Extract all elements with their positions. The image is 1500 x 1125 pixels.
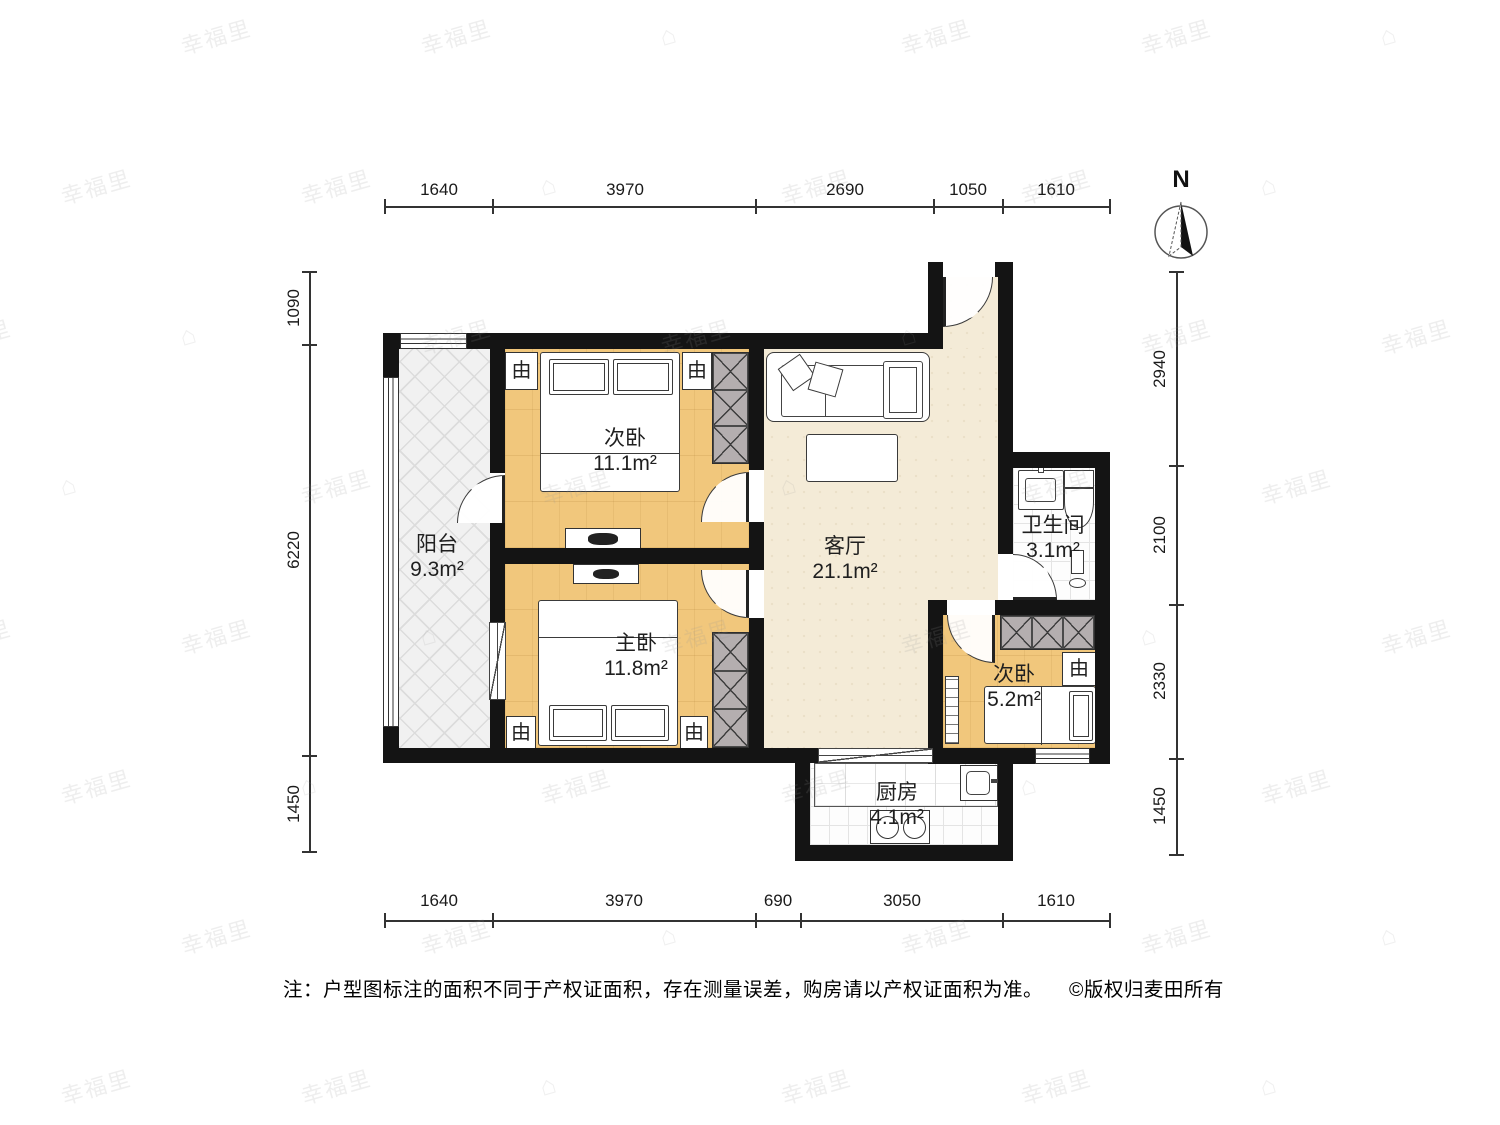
- dim-tick: [302, 851, 317, 853]
- faucet-icon: [991, 779, 998, 783]
- coffee-table: [806, 434, 898, 482]
- dim-tick: [755, 199, 757, 214]
- room-name: 厨房: [870, 781, 924, 806]
- compass-icon: [1146, 194, 1216, 266]
- dim-tick: [1169, 854, 1184, 856]
- watermark-logo-icon: ⌂: [656, 18, 682, 53]
- watermark-text: 幸福里: [1017, 1061, 1095, 1112]
- sofa-chaise: [883, 361, 923, 419]
- room-label-bathroom: 卫生间 3.1m²: [1022, 514, 1085, 564]
- bathroom-sink: [1018, 470, 1064, 510]
- watermark-text: 幸福里: [297, 1061, 375, 1112]
- room-label-master: 主卧 11.8m²: [604, 632, 668, 682]
- dim-value: 2690: [826, 180, 864, 200]
- room-name: 主卧: [604, 632, 668, 657]
- room-area: 11.1m²: [593, 452, 657, 477]
- dim-value: 1450: [1150, 787, 1170, 825]
- north-indicator: N: [1146, 166, 1216, 266]
- copyright-text: ©版权归麦田所有: [1069, 973, 1224, 1002]
- wall: [383, 333, 399, 377]
- wardrobe: [712, 632, 749, 748]
- watermark-text: 幸福里: [1137, 11, 1215, 62]
- room-name: 阳台: [410, 533, 464, 558]
- floorplan-page: { "watermark": { "brand": "幸福里", "logo_g…: [0, 0, 1500, 1125]
- dim-tick: [933, 199, 935, 214]
- watermark-text: 幸福里: [57, 761, 135, 812]
- wall: [383, 333, 943, 349]
- pillow: [549, 705, 607, 741]
- watermark-logo-icon: ⌂: [536, 168, 562, 203]
- watermark-text: 幸福里: [1257, 761, 1335, 812]
- watermark-text: 幸福里: [897, 11, 975, 62]
- watermark-logo-icon: ⌂: [1256, 168, 1282, 203]
- watermark-logo-icon: ⌂: [1016, 768, 1042, 803]
- dim-tick: [492, 913, 494, 928]
- nightstand-lamp: 由: [680, 716, 708, 750]
- tv-icon: [593, 569, 619, 580]
- dim-tick: [492, 199, 494, 214]
- nightstand-lamp: 由: [505, 352, 538, 390]
- dim-value: 690: [764, 891, 792, 911]
- window: [383, 377, 399, 727]
- nightstand-lamp: 由: [1062, 652, 1096, 686]
- dim-line-left: [309, 272, 311, 852]
- dim-tick: [1169, 758, 1184, 760]
- living-room-floor-lower: [764, 452, 928, 748]
- dim-tick: [800, 913, 802, 928]
- watermark-text: 幸福里: [897, 911, 975, 962]
- room-name: 客厅: [812, 535, 877, 560]
- dim-tick: [384, 913, 386, 928]
- wardrobe-cell: [1032, 616, 1063, 649]
- watermark-logo-icon: ⌂: [1136, 618, 1162, 653]
- watermark-logo-icon: ⌂: [1376, 918, 1402, 953]
- room-label-bedroom-b: 次卧 5.2m²: [987, 663, 1041, 713]
- blanket-fold: [1041, 687, 1042, 745]
- watermark-text: 幸福里: [417, 911, 495, 962]
- room-area: 3.1m²: [1022, 539, 1085, 564]
- wall: [490, 523, 505, 622]
- dim-value: 1640: [420, 180, 458, 200]
- wall: [490, 700, 505, 748]
- watermark-text: 幸福里: [177, 11, 255, 62]
- wall: [505, 548, 749, 564]
- tv-icon: [588, 533, 618, 545]
- pillow: [613, 359, 673, 395]
- watermark-text: 幸福里: [1377, 311, 1455, 362]
- watermark-text: 幸福里: [177, 611, 255, 662]
- watermark-text: 幸福里: [417, 11, 495, 62]
- sliding-door: [489, 622, 506, 700]
- dim-tick: [1169, 271, 1184, 273]
- dim-value: 1090: [284, 289, 304, 327]
- dim-value: 1610: [1037, 891, 1075, 911]
- pillow: [611, 705, 669, 741]
- room-label-living: 客厅 21.1m²: [812, 535, 877, 585]
- watermark-logo-icon: ⌂: [656, 918, 682, 953]
- lamp-icon: 由: [512, 361, 532, 381]
- room-area: 21.1m²: [812, 560, 877, 585]
- wardrobe-cell: [713, 671, 748, 709]
- watermark-logo-icon: ⌂: [1496, 468, 1500, 503]
- dim-tick: [302, 344, 317, 346]
- wardrobe-cell: [713, 390, 748, 427]
- window: [1035, 748, 1090, 764]
- tv-stand: [565, 528, 641, 550]
- lamp-icon: 由: [1069, 659, 1089, 679]
- wall: [749, 618, 764, 748]
- dim-value: 1050: [949, 180, 987, 200]
- wardrobe-cell: [713, 633, 748, 671]
- watermark-text: 幸福里: [0, 611, 15, 662]
- toilet-cistern: [1064, 470, 1094, 488]
- wall: [995, 600, 1110, 615]
- room-name: 次卧: [987, 663, 1041, 688]
- dim-tick: [1109, 199, 1111, 214]
- wall: [383, 727, 399, 763]
- kitchen-sink: [960, 765, 998, 801]
- pillow: [549, 359, 609, 395]
- watermark-text: 幸福里: [297, 161, 375, 212]
- wardrobe: [712, 352, 749, 464]
- dim-tick: [1109, 913, 1111, 928]
- dim-tick: [1169, 604, 1184, 606]
- wall: [749, 522, 764, 570]
- dim-line-right: [1176, 272, 1178, 855]
- room-name: 次卧: [593, 427, 657, 452]
- watermark-logo-icon: ⌂: [536, 1068, 562, 1103]
- watermark-text: 幸福里: [1377, 611, 1455, 662]
- room-label-kitchen: 厨房 4.1m²: [870, 781, 924, 831]
- room-area: 9.3m²: [410, 558, 464, 583]
- watermark-text: 幸福里: [537, 761, 615, 812]
- wardrobe: [1000, 615, 1095, 650]
- wall: [928, 262, 943, 349]
- dim-value: 2100: [1150, 516, 1170, 554]
- nightstand-lamp: 由: [506, 716, 536, 750]
- nightstand-lamp: 由: [682, 352, 712, 390]
- room-area: 5.2m²: [987, 688, 1041, 713]
- room-label-bedroom-a: 次卧 11.1m²: [593, 427, 657, 477]
- wall: [928, 600, 943, 764]
- dim-tick: [302, 755, 317, 757]
- dim-value: 3970: [606, 180, 644, 200]
- wardrobe-cell: [1001, 616, 1032, 649]
- sofa: [766, 352, 930, 422]
- dim-tick: [302, 271, 317, 273]
- watermark-logo-icon: ⌂: [56, 468, 82, 503]
- north-label: N: [1146, 166, 1216, 194]
- watermark-logo-icon: ⌂: [1376, 18, 1402, 53]
- dim-tick: [755, 913, 757, 928]
- sink-basin: [966, 771, 990, 795]
- watermark-text: 幸福里: [57, 1061, 135, 1112]
- lamp-icon: 由: [687, 361, 707, 381]
- watermark-text: 幸福里: [0, 311, 15, 362]
- room-label-balcony: 阳台 9.3m²: [410, 533, 464, 583]
- watermark-text: 幸福里: [57, 161, 135, 212]
- watermark-text: 幸福里: [1257, 461, 1335, 512]
- dim-tick: [1002, 199, 1004, 214]
- shelf: [945, 676, 959, 744]
- wall: [998, 262, 1013, 554]
- wardrobe-cell: [713, 709, 748, 747]
- window: [400, 333, 467, 349]
- watermark-logo-icon: ⌂: [1256, 1068, 1282, 1103]
- wall: [795, 845, 1013, 861]
- wall: [749, 349, 764, 470]
- dim-value: 2330: [1150, 662, 1170, 700]
- wall: [998, 452, 1110, 468]
- hallway-floor: [928, 452, 998, 600]
- dim-value: 1610: [1037, 180, 1075, 200]
- room-area: 11.8m²: [604, 657, 668, 682]
- wall: [490, 349, 505, 473]
- watermark-logo-icon: ⌂: [176, 318, 202, 353]
- note-text: 注：户型图标注的面积不同于产权证面积，存在测量误差，购房请以产权证面积为准。: [283, 973, 1043, 1002]
- watermark-text: 幸福里: [1137, 911, 1215, 962]
- dim-value: 1640: [420, 891, 458, 911]
- disclaimer-note: 注：户型图标注的面积不同于产权证面积，存在测量误差，购房请以产权证面积为准。 ©…: [283, 973, 1224, 1002]
- dim-tick: [1002, 913, 1004, 928]
- room-area: 4.1m²: [870, 806, 924, 831]
- dim-value: 1450: [284, 785, 304, 823]
- dim-value: 6220: [284, 531, 304, 569]
- lamp-icon: 由: [684, 723, 704, 743]
- dim-tick: [384, 199, 386, 214]
- dim-value: 3050: [883, 891, 921, 911]
- floor-drain: [1069, 578, 1086, 588]
- lamp-icon: 由: [511, 723, 531, 743]
- wall: [383, 748, 818, 763]
- dim-tick: [1169, 465, 1184, 467]
- wardrobe-cell: [713, 426, 748, 463]
- pillow: [1069, 691, 1093, 741]
- watermark-text: 幸福里: [177, 911, 255, 962]
- wardrobe-cell: [1063, 616, 1094, 649]
- wardrobe-cell: [713, 353, 748, 390]
- sliding-door: [818, 748, 933, 763]
- dim-value: 2940: [1150, 350, 1170, 388]
- tv-stand: [573, 564, 639, 584]
- watermark-text: 幸福里: [777, 1061, 855, 1112]
- room-name: 卫生间: [1022, 514, 1085, 539]
- sink-basin: [1025, 478, 1056, 502]
- dim-value: 3970: [605, 891, 643, 911]
